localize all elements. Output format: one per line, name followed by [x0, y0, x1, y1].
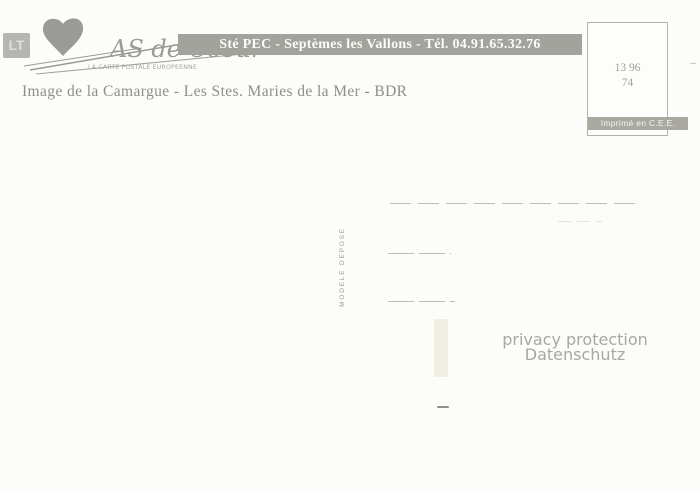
redacted-area — [434, 319, 448, 377]
heart-icon — [43, 18, 83, 56]
modele-depose-note: MODELE DEPOSE — [339, 217, 349, 317]
small-dash-mark — [437, 406, 449, 408]
publisher-banner: Sté PEC - Septèmes les Vallons - Tél. 04… — [178, 34, 582, 55]
address-line-faint — [558, 221, 602, 222]
corner-badge: LT — [3, 33, 30, 58]
caption-line: Image de la Camargue - Les Stes. Maries … — [22, 83, 407, 101]
brand-tagline: LA CARTE POSTALE EUROPEENNE — [88, 64, 197, 71]
stamp-code: 13 96 74 — [588, 61, 667, 91]
address-line-3 — [388, 301, 455, 302]
privacy-watermark: privacy protection Datenschutz — [450, 332, 700, 362]
printed-in-cee-label: Imprimé en C.E.E. — [588, 117, 688, 130]
address-line-2 — [388, 253, 451, 254]
privacy-watermark-line2: Datenschutz — [450, 347, 700, 362]
stamp-code-line2: 74 — [588, 76, 667, 91]
address-line-1 — [390, 203, 641, 204]
stamp-code-line1: 13 96 — [588, 61, 667, 76]
edge-tick-mark — [690, 63, 696, 64]
